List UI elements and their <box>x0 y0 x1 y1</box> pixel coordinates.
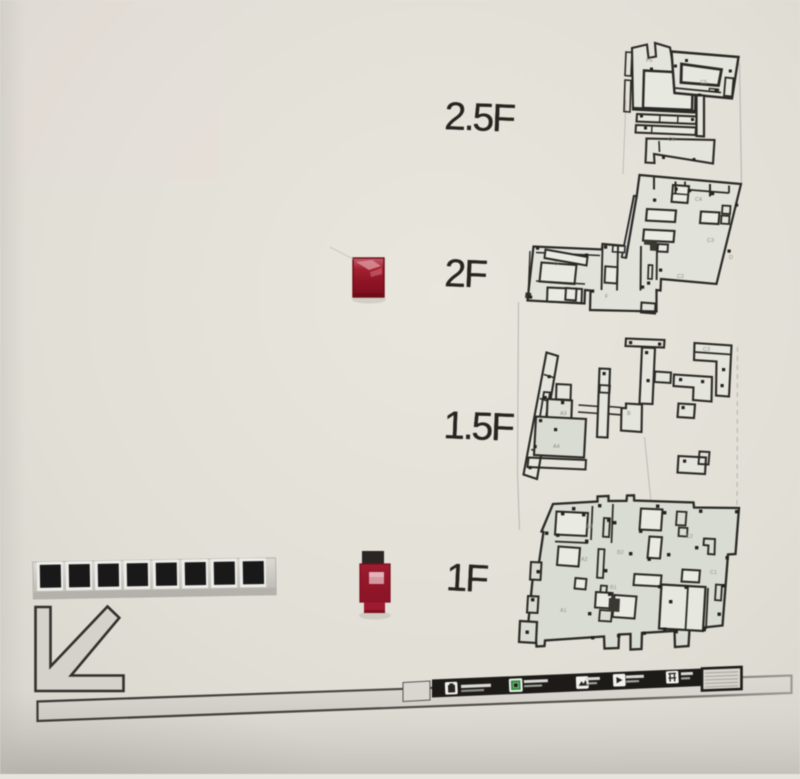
svg-text:1.5F: 1.5F <box>443 404 515 450</box>
svg-text:C1: C1 <box>710 570 717 576</box>
svg-text:D: D <box>729 255 733 261</box>
svg-text:1F: 1F <box>445 556 488 601</box>
svg-text:A1: A1 <box>560 608 567 614</box>
svg-text:A3: A3 <box>560 411 567 417</box>
svg-text:C2: C2 <box>677 274 684 280</box>
svg-text:C3: C3 <box>707 238 714 244</box>
svg-text:D: D <box>554 261 558 267</box>
svg-text:2F: 2F <box>444 252 488 297</box>
svg-text:C3: C3 <box>703 347 710 353</box>
svg-text:C2: C2 <box>686 534 693 540</box>
svg-text:B: B <box>627 411 631 417</box>
svg-text:A3: A3 <box>586 524 593 530</box>
svg-text:C5: C5 <box>700 80 707 86</box>
svg-text:C4: C4 <box>695 197 702 203</box>
svg-text:B2: B2 <box>617 550 624 556</box>
svg-text:A4: A4 <box>553 444 560 450</box>
svg-text:A2: A2 <box>581 557 588 563</box>
svg-text:2.5F: 2.5F <box>444 95 516 141</box>
svg-text:F5: F5 <box>646 58 652 64</box>
svg-text:C6: C6 <box>668 137 675 143</box>
svg-text:B1: B1 <box>610 585 617 591</box>
